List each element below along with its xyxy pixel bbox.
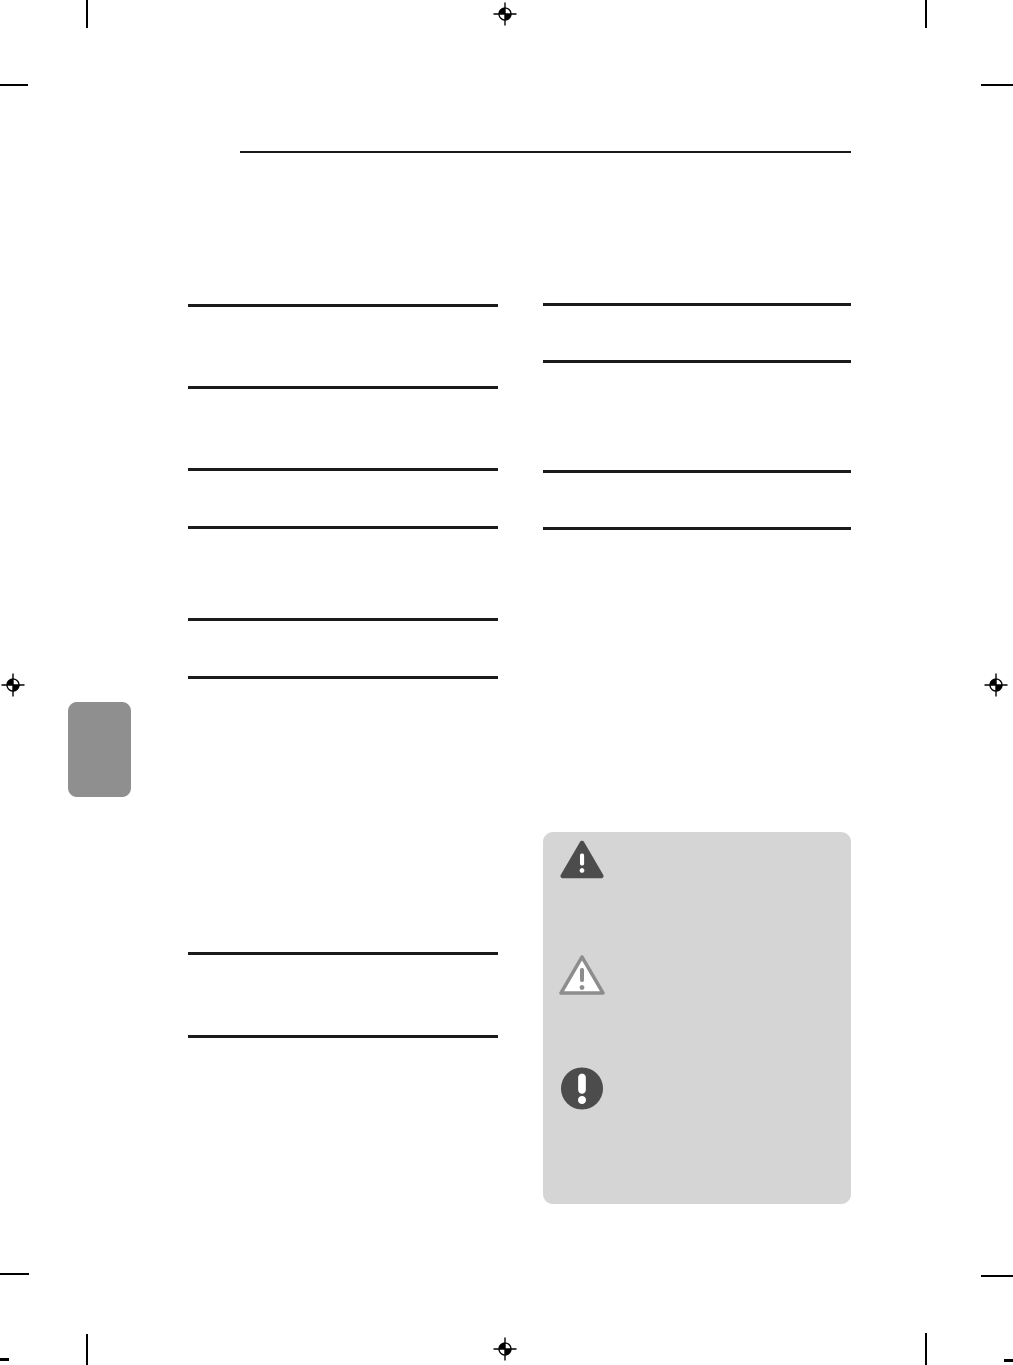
crop-mark-bottom-left-horizontal <box>0 1273 29 1275</box>
crop-mark-bottom-left-corner-tick <box>0 1358 9 1361</box>
right-column-rule <box>543 470 851 473</box>
document-page <box>0 0 1013 1365</box>
warning-triangle-outline-icon <box>558 953 606 997</box>
crop-mark-right-horizontal <box>981 84 1013 86</box>
left-column-rule <box>188 386 498 389</box>
left-column-rule <box>188 304 498 307</box>
left-column-rule <box>188 1035 498 1038</box>
crop-mark-bottom-right-corner-tick <box>1004 1359 1013 1362</box>
warning-triangle-filled-icon <box>560 840 604 879</box>
crop-mark-bottom-right-horizontal <box>981 1275 1013 1277</box>
left-column-rule <box>188 952 498 955</box>
left-column-rule <box>188 676 498 679</box>
crop-mark-bottom-left-vertical <box>86 1334 88 1365</box>
registration-mark-icon <box>493 1337 517 1361</box>
crop-mark-bottom-right-vertical <box>925 1333 927 1365</box>
registration-mark-icon <box>984 673 1008 697</box>
header-rule <box>240 151 851 153</box>
left-column-rule <box>188 468 498 471</box>
safety-notice-box <box>543 832 851 1204</box>
right-column-rule <box>543 303 851 306</box>
crop-mark-top-right-vertical <box>925 0 927 28</box>
crop-mark-top-left-vertical <box>86 0 88 28</box>
exclamation-circle-icon <box>560 1066 604 1111</box>
right-column-rule <box>543 360 851 363</box>
registration-mark-icon <box>1 673 25 697</box>
chapter-thumb-tab <box>68 702 131 797</box>
right-column-rule <box>543 527 851 530</box>
left-column-rule <box>188 526 498 529</box>
crop-mark-left-horizontal <box>0 84 28 86</box>
registration-mark-icon <box>493 2 517 26</box>
left-column-rule <box>188 618 498 621</box>
